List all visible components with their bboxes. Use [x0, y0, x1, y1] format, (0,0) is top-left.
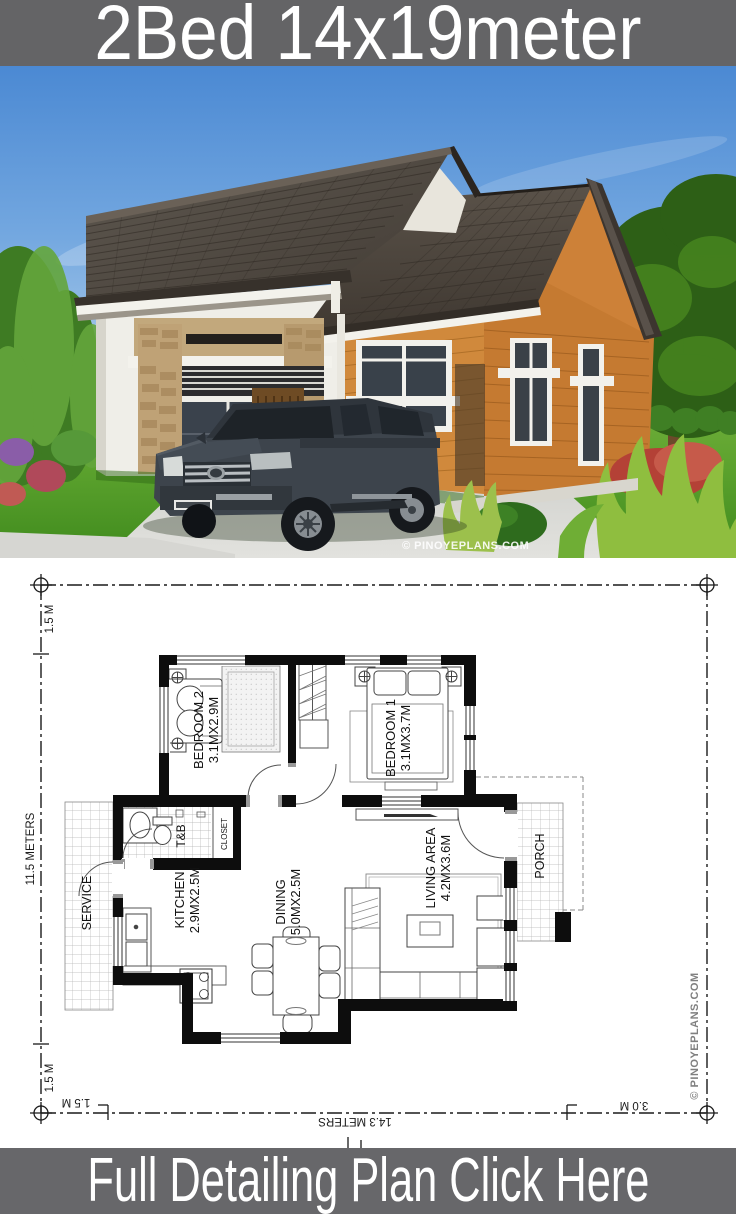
svg-text:LIVING AREA: LIVING AREA [423, 827, 438, 908]
svg-text:14.3 METERS: 14.3 METERS [318, 1115, 392, 1127]
svg-text:1.5 M: 1.5 M [62, 1096, 91, 1108]
svg-text:CLOSET: CLOSET [220, 818, 229, 850]
svg-text:1.5 M: 1.5 M [44, 605, 56, 634]
svg-text:KITCHEN: KITCHEN [172, 871, 187, 928]
svg-text:4.2MX3.6M: 4.2MX3.6M [438, 835, 453, 901]
svg-text:BEDROOM 1: BEDROOM 1 [383, 699, 398, 777]
svg-text:© PINOYEPLANS.COM: © PINOYEPLANS.COM [402, 540, 529, 552]
svg-text:BEDROOM 2: BEDROOM 2 [191, 691, 206, 769]
svg-text:DINING: DINING [273, 879, 288, 925]
svg-text:© PINOYEPLANS.COM: © PINOYEPLANS.COM [689, 972, 701, 1099]
svg-text:2.9MX2.5M: 2.9MX2.5M [187, 867, 202, 933]
svg-text:3.1MX2.9M: 3.1MX2.9M [206, 697, 221, 763]
svg-text:1.5 M: 1.5 M [44, 1064, 56, 1093]
svg-text:3.0 M: 3.0 M [620, 1099, 649, 1111]
svg-text:11.5 METERS: 11.5 METERS [25, 812, 37, 885]
svg-text:5.0MX2.5M: 5.0MX2.5M [288, 869, 303, 935]
svg-text:3.1MX3.7M: 3.1MX3.7M [398, 705, 413, 771]
svg-text:PORCH: PORCH [533, 833, 547, 878]
svg-text:T&B: T&B [174, 824, 188, 847]
svg-text:SERVICE: SERVICE [80, 876, 94, 931]
